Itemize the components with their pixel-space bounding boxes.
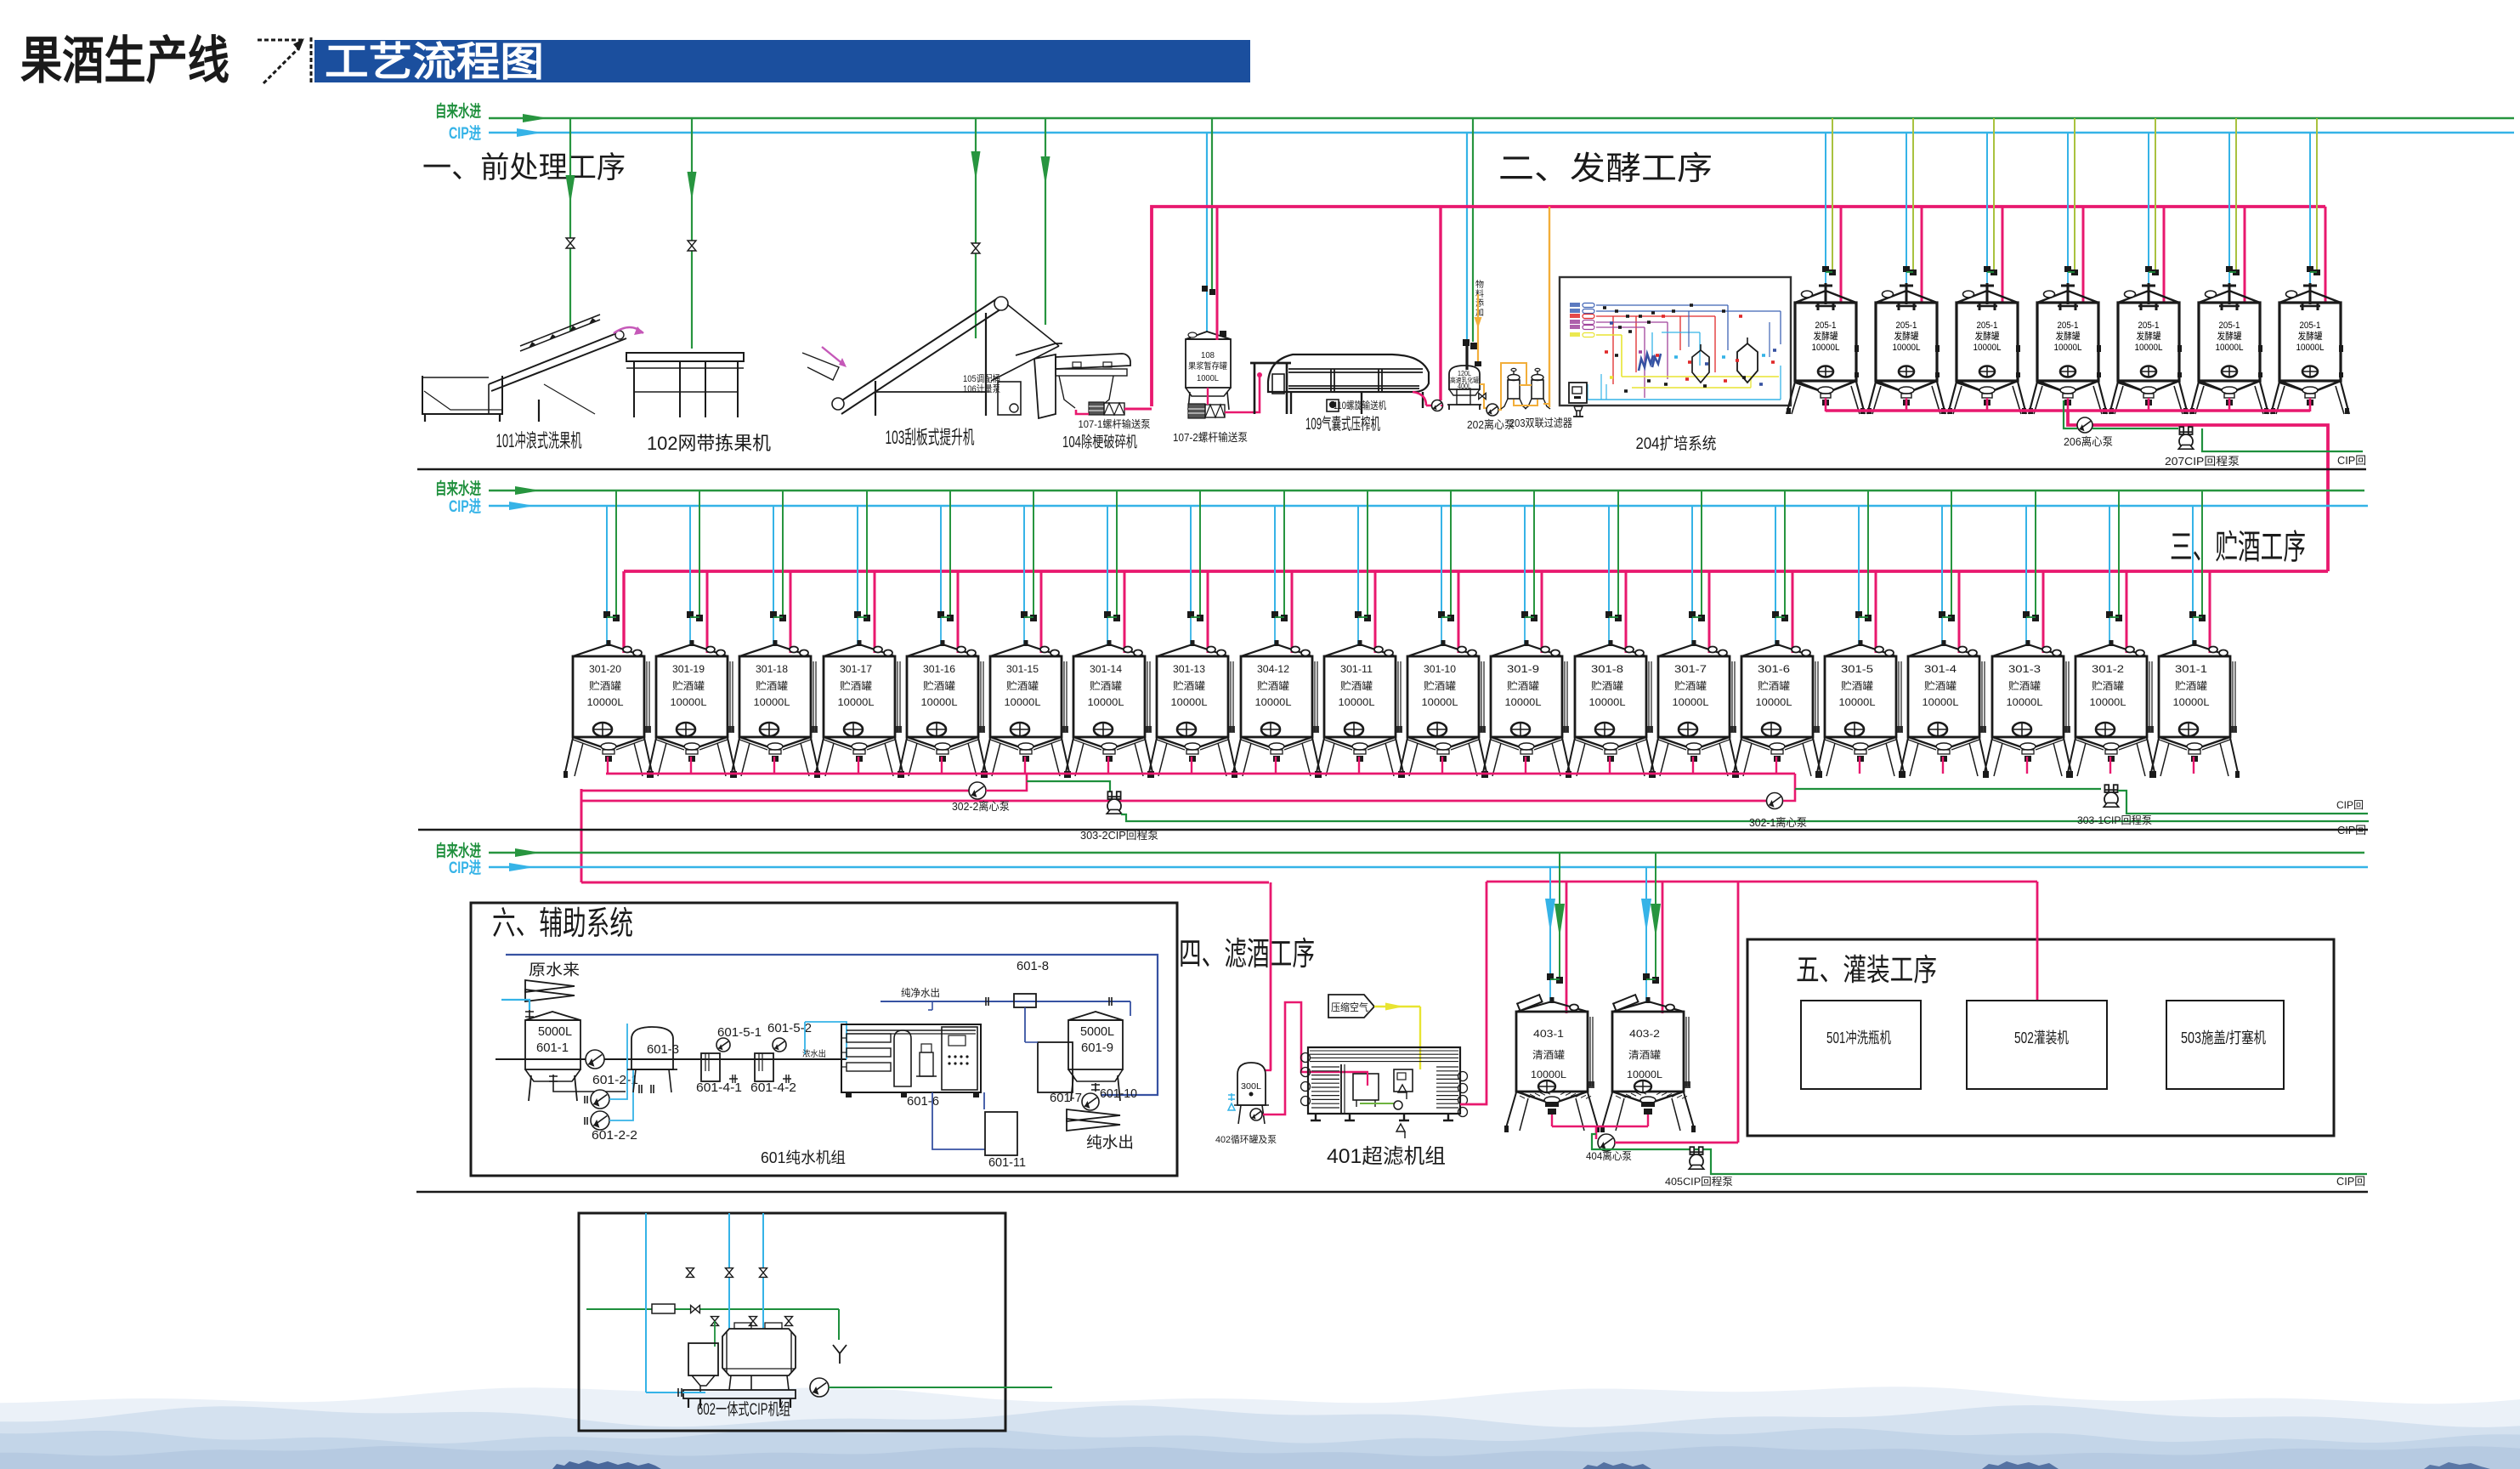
svg-text:10000L: 10000L [2007, 696, 2043, 708]
svg-text:203双联过滤器: 203双联过滤器 [1509, 417, 1572, 429]
svg-text:301-7: 301-7 [1674, 663, 1707, 675]
svg-text:10000L: 10000L [1422, 696, 1458, 708]
svg-text:601-5-1: 601-5-1 [717, 1025, 762, 1040]
svg-text:10000L: 10000L [2173, 696, 2210, 708]
svg-text:601-2-1: 601-2-1 [592, 1073, 638, 1087]
svg-text:106计量泵: 106计量泵 [963, 383, 1000, 394]
svg-text:301-3: 301-3 [2008, 663, 2041, 675]
svg-text:纯净水出: 纯净水出 [901, 987, 940, 999]
svg-text:贮酒罐: 贮酒罐 [2092, 679, 2124, 692]
svg-text:六、辅助系统: 六、辅助系统 [492, 906, 633, 942]
svg-text:10000L: 10000L [1088, 696, 1124, 708]
svg-text:10000L: 10000L [1627, 1069, 1662, 1080]
svg-text:自来水进: 自来水进 [435, 841, 481, 860]
svg-text:601-4-2: 601-4-2 [750, 1080, 796, 1095]
svg-text:1000L: 1000L [1197, 374, 1219, 383]
svg-text:10000L: 10000L [1756, 696, 1792, 708]
svg-text:贮酒罐: 贮酒罐 [1758, 679, 1790, 692]
svg-text:贮酒罐: 贮酒罐 [2008, 679, 2041, 692]
svg-text:贮酒罐: 贮酒罐 [1674, 679, 1707, 692]
svg-text:10000L: 10000L [1923, 696, 1959, 708]
svg-text:301-16: 301-16 [923, 663, 955, 675]
svg-text:CIP进: CIP进 [449, 124, 481, 143]
svg-text:503施盖/打塞机: 503施盖/打塞机 [2181, 1029, 2266, 1046]
svg-text:301-9: 301-9 [1507, 663, 1539, 675]
svg-text:CIP回: CIP回 [2336, 799, 2364, 811]
svg-text:工艺流程图: 工艺流程图 [325, 39, 544, 84]
svg-text:10000L: 10000L [754, 696, 790, 708]
svg-text:402循环罐及泵: 402循环罐及泵 [1215, 1134, 1277, 1145]
svg-text:10000L: 10000L [838, 696, 875, 708]
svg-text:10000L: 10000L [671, 696, 707, 708]
svg-text:贮酒罐: 贮酒罐 [840, 679, 872, 692]
svg-text:贮酒罐: 贮酒罐 [1257, 679, 1289, 692]
svg-text:贮酒罐: 贮酒罐 [1006, 679, 1039, 692]
svg-text:自来水进: 自来水进 [435, 479, 481, 498]
svg-text:601纯水机组: 601纯水机组 [761, 1149, 846, 1166]
svg-text:果酒生产线: 果酒生产线 [20, 32, 229, 89]
svg-text:102网带拣果机: 102网带拣果机 [647, 433, 771, 454]
svg-text:104除梗破碎机: 104除梗破碎机 [1062, 434, 1137, 451]
svg-text:贮酒罐: 贮酒罐 [1090, 679, 1122, 692]
svg-text:10000L: 10000L [1589, 696, 1626, 708]
svg-text:405CIP回程泵: 405CIP回程泵 [1665, 1175, 1733, 1188]
svg-text:301-4: 301-4 [1924, 663, 1957, 675]
svg-text:料: 料 [1475, 288, 1484, 299]
svg-text:301-15: 301-15 [1006, 663, 1039, 675]
svg-text:贮酒罐: 贮酒罐 [1924, 679, 1957, 692]
svg-text:10000L: 10000L [1005, 696, 1041, 708]
svg-text:五、灌装工序: 五、灌装工序 [1796, 952, 1937, 987]
svg-text:CIP进: CIP进 [449, 497, 481, 516]
svg-text:贮酒罐: 贮酒罐 [2175, 679, 2207, 692]
svg-text:601-3: 601-3 [647, 1042, 679, 1057]
svg-text:601-6: 601-6 [907, 1094, 939, 1109]
svg-text:301-11: 301-11 [1340, 663, 1373, 675]
svg-text:CIP进: CIP进 [449, 859, 481, 877]
svg-text:添: 添 [1475, 298, 1484, 309]
svg-text:204扩培系统: 204扩培系统 [1636, 434, 1717, 453]
svg-text:301-17: 301-17 [840, 663, 872, 675]
svg-text:601-9: 601-9 [1081, 1041, 1113, 1055]
svg-text:109气囊式压榨机: 109气囊式压榨机 [1305, 415, 1380, 434]
svg-text:601-2-2: 601-2-2 [592, 1128, 637, 1143]
svg-text:浓水出: 浓水出 [802, 1048, 826, 1059]
svg-text:301-13: 301-13 [1173, 663, 1205, 675]
svg-text:502灌装机: 502灌装机 [2014, 1029, 2069, 1046]
svg-text:贮酒罐: 贮酒罐 [923, 679, 955, 692]
svg-text:CIP回: CIP回 [2337, 454, 2366, 467]
svg-text:401超滤机组: 401超滤机组 [1327, 1145, 1446, 1168]
svg-text:压缩空气: 压缩空气 [1331, 1001, 1368, 1013]
svg-text:自来水进: 自来水进 [435, 101, 481, 121]
svg-text:108: 108 [1201, 351, 1215, 360]
svg-text:301-10: 301-10 [1424, 663, 1456, 675]
svg-text:602一体式CIP机组: 602一体式CIP机组 [697, 1400, 790, 1419]
svg-text:501冲洗瓶机: 501冲洗瓶机 [1826, 1029, 1891, 1046]
svg-text:207CIP回程泵: 207CIP回程泵 [2165, 455, 2240, 468]
svg-text:一、前处理工序: 一、前处理工序 [422, 151, 626, 184]
svg-text:103刮板式提升机: 103刮板式提升机 [886, 427, 975, 448]
svg-text:加: 加 [1475, 308, 1484, 318]
svg-text:601-7: 601-7 [1050, 1091, 1082, 1105]
svg-text:404离心泵: 404离心泵 [1586, 1149, 1632, 1162]
svg-text:贮酒罐: 贮酒罐 [589, 679, 621, 692]
svg-text:10000L: 10000L [1839, 696, 1876, 708]
svg-text:601-10: 601-10 [1100, 1086, 1137, 1101]
svg-text:301-18: 301-18 [756, 663, 788, 675]
svg-text:403-1: 403-1 [1533, 1028, 1564, 1040]
svg-text:贮酒罐: 贮酒罐 [1340, 679, 1373, 692]
svg-text:10000L: 10000L [2090, 696, 2126, 708]
svg-text:CIP回: CIP回 [2336, 1175, 2365, 1188]
svg-text:107-1螺杆输送泵: 107-1螺杆输送泵 [1079, 417, 1151, 430]
svg-text:清酒罐: 清酒罐 [1628, 1049, 1661, 1061]
svg-text:贮酒罐: 贮酒罐 [1507, 679, 1539, 692]
svg-text:301-19: 301-19 [672, 663, 705, 675]
svg-text:301-1: 301-1 [2175, 663, 2207, 675]
svg-text:10000L: 10000L [1531, 1069, 1566, 1080]
svg-text:贮酒罐: 贮酒罐 [1591, 679, 1623, 692]
svg-text:304-12: 304-12 [1257, 663, 1289, 675]
svg-text:10000L: 10000L [1505, 696, 1542, 708]
svg-text:纯水出: 纯水出 [1086, 1134, 1134, 1151]
svg-text:三、贮酒工序: 三、贮酒工序 [2170, 529, 2306, 566]
svg-text:206离心泵: 206离心泵 [2064, 435, 2113, 448]
svg-text:10000L: 10000L [587, 696, 624, 708]
svg-text:303-1CIP回程泵: 303-1CIP回程泵 [2077, 814, 2152, 826]
svg-text:贮酒罐: 贮酒罐 [1424, 679, 1456, 692]
svg-text:贮酒罐: 贮酒罐 [1841, 679, 1873, 692]
svg-text:301-14: 301-14 [1090, 663, 1122, 675]
svg-text:果浆暂存罐: 果浆暂存罐 [1188, 360, 1227, 372]
svg-text:202离心泵: 202离心泵 [1467, 418, 1515, 431]
svg-text:贮酒罐: 贮酒罐 [756, 679, 788, 692]
svg-text:物: 物 [1475, 279, 1484, 290]
svg-text:301-8: 301-8 [1591, 663, 1623, 675]
svg-text:原水来: 原水来 [529, 961, 580, 978]
svg-text:四、滤酒工序: 四、滤酒工序 [1179, 937, 1315, 973]
svg-text:10000L: 10000L [1171, 696, 1208, 708]
svg-text:107-2螺杆输送泵: 107-2螺杆输送泵 [1173, 431, 1248, 444]
svg-text:301-2: 301-2 [2092, 663, 2124, 675]
svg-text:101冲浪式洗果机: 101冲浪式洗果机 [496, 430, 582, 451]
svg-text:5000L: 5000L [1080, 1024, 1114, 1039]
svg-text:10000L: 10000L [1339, 696, 1375, 708]
svg-text:105调配桶: 105调配桶 [963, 372, 1000, 384]
svg-text:300L: 300L [1241, 1082, 1261, 1092]
svg-text:601-8: 601-8 [1016, 959, 1049, 973]
svg-text:301-20: 301-20 [589, 663, 621, 675]
svg-text:10000L: 10000L [1255, 696, 1292, 708]
svg-text:301-6: 301-6 [1758, 663, 1790, 675]
svg-text:二、发酵工序: 二、发酵工序 [1498, 151, 1713, 187]
svg-text:403-2: 403-2 [1629, 1028, 1660, 1040]
svg-text:5000L: 5000L [538, 1024, 572, 1039]
svg-text:清酒罐: 清酒罐 [1532, 1049, 1565, 1061]
svg-text:110螺旋输送机: 110螺旋输送机 [1334, 399, 1386, 411]
svg-text:贮酒罐: 贮酒罐 [1173, 679, 1205, 692]
svg-text:10000L: 10000L [1673, 696, 1709, 708]
svg-text:302-1离心泵: 302-1离心泵 [1749, 816, 1807, 829]
svg-text:301-5: 301-5 [1841, 663, 1873, 675]
svg-text:302-2离心泵: 302-2离心泵 [952, 800, 1010, 813]
svg-text:贮酒罐: 贮酒罐 [672, 679, 705, 692]
svg-text:601-11: 601-11 [988, 1155, 1026, 1170]
svg-text:601-1: 601-1 [536, 1041, 569, 1055]
svg-text:10000L: 10000L [921, 696, 958, 708]
